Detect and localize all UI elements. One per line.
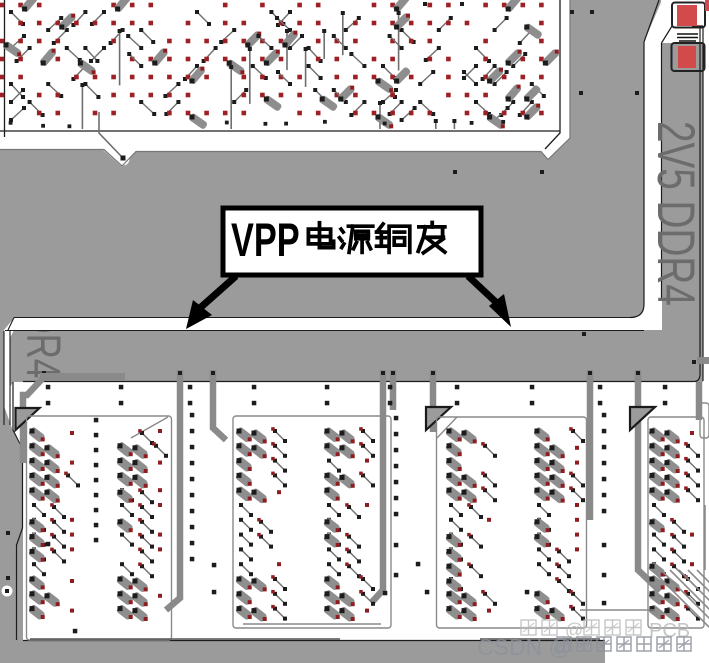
- svg-text:VPP: VPP: [231, 214, 300, 267]
- svg-text:2V5 DDR4: 2V5 DDR4: [647, 121, 706, 306]
